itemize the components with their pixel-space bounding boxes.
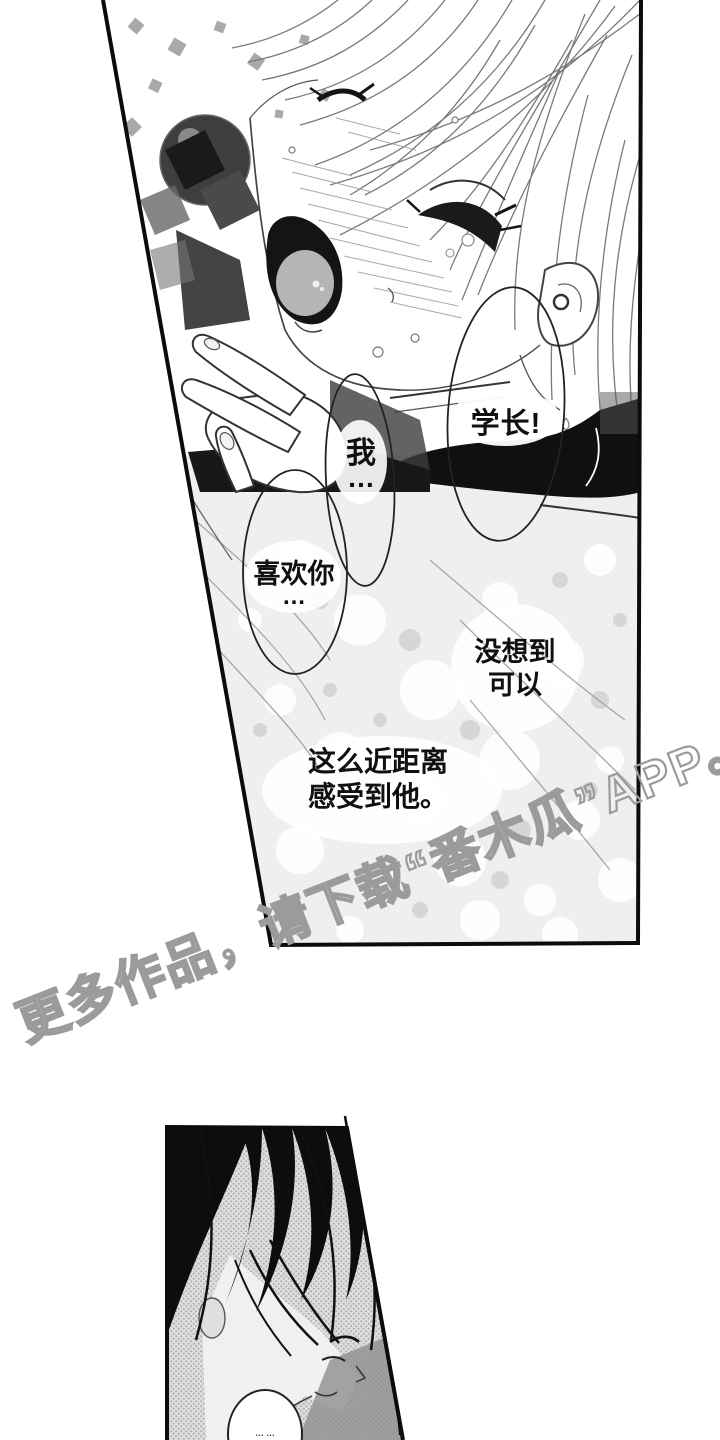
manga-page: 学长! 我 … 喜欢你 … 没想到 可以 这么近距离 感受到他。 …… 更多作品… <box>0 0 720 1440</box>
speech-unexpected-line2: 可以 <box>452 669 578 702</box>
speech-so-close: 这么近距离 感受到他。 <box>308 744 473 814</box>
speech-bottom-murmur: …… <box>238 1428 294 1438</box>
speech-so-close-line2: 感受到他。 <box>308 779 473 814</box>
speech-unexpected-line1: 没想到 <box>452 636 578 669</box>
speech-i-line2: … <box>332 462 390 494</box>
speech-i: 我 … <box>332 428 390 494</box>
sparkle-background <box>172 455 642 953</box>
manga-artwork <box>0 0 720 1440</box>
bottom-panel-illustration <box>167 1127 407 1440</box>
speech-senpai: 学长! <box>450 400 562 442</box>
speech-unexpected: 没想到 可以 <box>452 636 578 702</box>
speech-so-close-line1: 这么近距离 <box>308 744 473 779</box>
speech-like-you: 喜欢你 … <box>238 552 350 611</box>
